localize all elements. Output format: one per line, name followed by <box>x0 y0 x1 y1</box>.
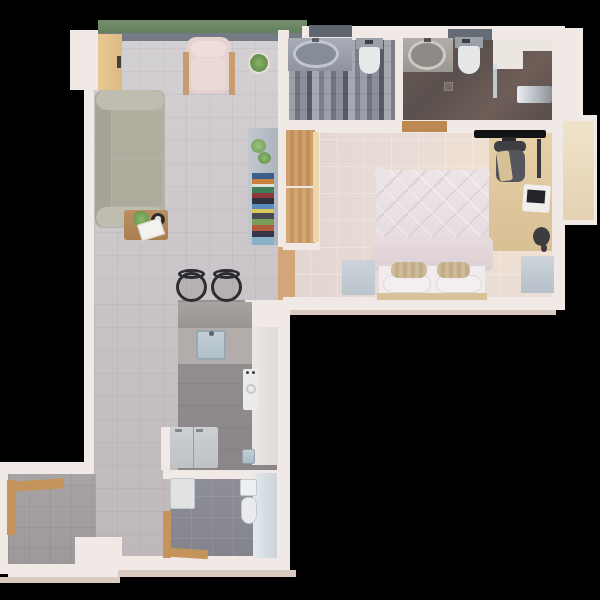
bathroom-2-floor-drain <box>444 82 453 91</box>
bathroom-2-glass-partition <box>493 64 497 98</box>
bathroom-1-toilet-button <box>365 40 373 44</box>
kitchen-stove-burner <box>246 384 256 394</box>
balcony-planter-strip <box>98 20 307 33</box>
wall-bathroom-divider <box>395 33 403 126</box>
bedroom-wardrobe-strip <box>313 132 319 242</box>
armchair-pillow-roll <box>191 41 226 57</box>
nightstand-right <box>521 256 554 293</box>
bar-stool-1-back <box>178 269 205 279</box>
bed-accent-pillow-left <box>391 262 427 278</box>
wall-bottom-center-shadow <box>118 570 296 577</box>
closet-annex-interior <box>563 121 594 220</box>
bathroom-1-toilet-bowl <box>359 47 380 74</box>
small-bathroom-sink <box>240 479 257 496</box>
bedroom-wardrobe-wood-lower <box>286 188 315 243</box>
refrigerator-handle-2 <box>196 429 203 432</box>
armchair-arm-left <box>183 52 189 95</box>
bathroom-2-faucet <box>424 38 431 42</box>
refrigerator-handle-1 <box>175 429 182 432</box>
bedroom-doorway-wood-threshold <box>278 247 295 302</box>
desk-lamp <box>537 139 541 178</box>
console-plant-2 <box>258 152 271 164</box>
bed-corner-knob-right <box>477 167 490 180</box>
desk-laptop-screen <box>527 189 546 203</box>
bedroom-wardrobe-wood-upper <box>286 130 315 186</box>
refrigerator <box>170 427 218 468</box>
wardrobe-top-left-handle <box>117 56 121 68</box>
sofa-seat-cushion-2 <box>112 160 162 206</box>
desk-dark-object <box>533 227 550 246</box>
bathroom-2-toilet-bowl <box>458 46 480 74</box>
refrigerator-divider <box>193 427 194 468</box>
bathroom-1-sink-basin <box>293 40 339 68</box>
entry-closet-block <box>70 30 98 90</box>
nightstand-left <box>342 260 375 295</box>
window-segment-1 <box>309 25 352 37</box>
floor-plan-render <box>0 0 600 600</box>
wall-stub-fridge <box>161 427 170 470</box>
bathroom-2-toilet-button <box>462 39 470 43</box>
kitchen-island-bar-top <box>178 302 252 328</box>
kitchen-stove-knob-2 <box>252 371 255 374</box>
wall-bedroom-bottom-shadow <box>290 310 556 315</box>
plant-side-table-plant <box>250 54 268 72</box>
sofa-backrest <box>95 92 111 226</box>
armchair-arm-right <box>229 52 235 95</box>
bathroom-1-faucet <box>312 38 319 42</box>
wall-left <box>84 86 94 466</box>
console-books <box>252 173 274 245</box>
bed-headboard <box>377 293 487 300</box>
bathroom-2-shower-floor-b <box>493 36 523 69</box>
bed-accent-pillow-right <box>437 262 470 278</box>
kitchen-faucet <box>209 331 214 336</box>
sofa-seat-cushion-1 <box>112 111 162 159</box>
small-bathroom-toilet <box>241 497 257 524</box>
wall-kitchen-right <box>277 300 290 570</box>
console-plant-1 <box>251 139 266 153</box>
entry-door-panel <box>7 480 16 535</box>
bed-corner-knob-left <box>374 167 387 180</box>
kitchen-stove-knob-1 <box>246 371 249 374</box>
desk-dark-object-tail <box>541 244 547 252</box>
bathroom-2-door-mat <box>402 121 447 132</box>
sofa-armrest-top <box>96 90 164 110</box>
wall-entry-top <box>0 462 94 474</box>
bathroom-2-bench <box>517 86 552 103</box>
wall-entry-bottom-shadow <box>0 577 120 583</box>
bar-stool-2-back <box>213 269 240 279</box>
small-bathroom-shower-tray <box>170 478 195 509</box>
armchair-seat <box>191 58 226 90</box>
bathroom-2-sink-basin <box>408 40 446 70</box>
kitchen-sink-2 <box>242 449 255 464</box>
